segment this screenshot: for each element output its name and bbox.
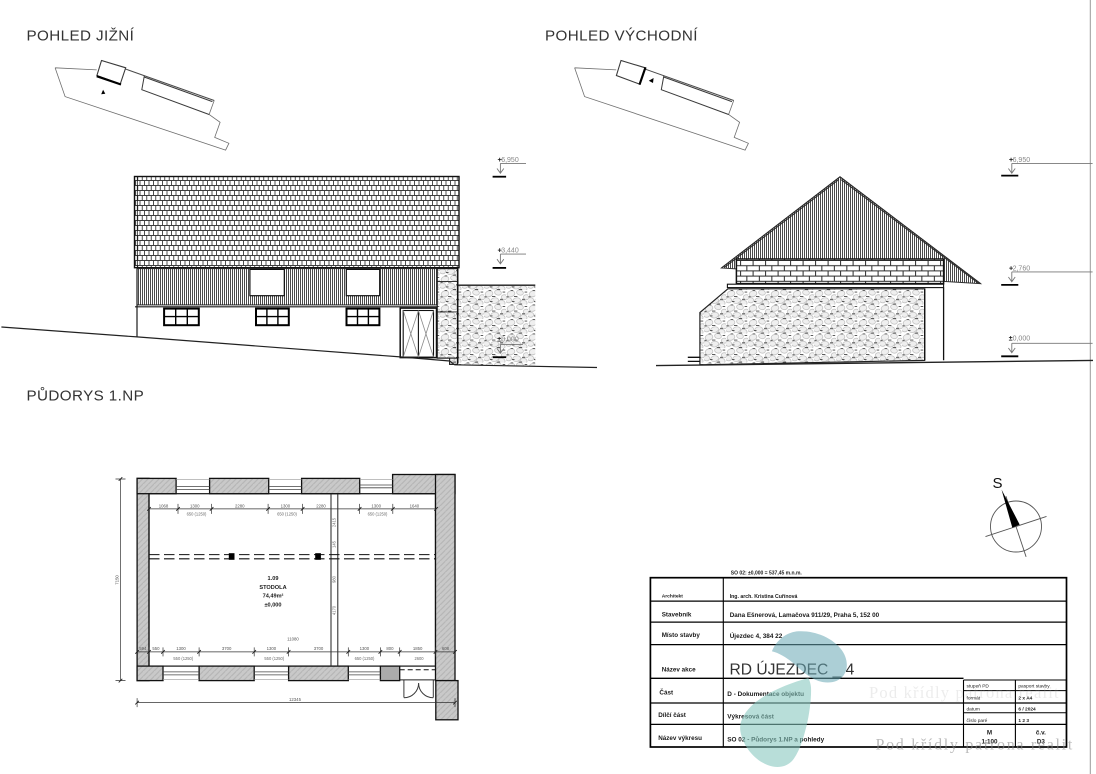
svg-text:74,49m²: 74,49m² <box>263 593 284 600</box>
svg-text:POHLED JIŽNÍ: POHLED JIŽNÍ <box>27 28 135 45</box>
svg-text:1300: 1300 <box>281 503 291 508</box>
svg-text:+: + <box>498 246 503 255</box>
svg-text:±: ± <box>497 337 501 344</box>
svg-text:550 (1250): 550 (1250) <box>173 656 193 661</box>
svg-text:Část: Část <box>659 688 674 697</box>
svg-text:2,760: 2,760 <box>1011 265 1030 272</box>
svg-text:±0,000: ±0,000 <box>264 602 281 608</box>
svg-text:650 (1250): 650 (1250) <box>355 656 375 661</box>
svg-text:7150: 7150 <box>115 575 120 585</box>
svg-text:12345: 12345 <box>289 697 302 702</box>
svg-text:1.09: 1.09 <box>268 576 279 582</box>
svg-text:Stavebník: Stavebník <box>662 611 692 618</box>
svg-text:M: M <box>987 730 992 737</box>
svg-text:594: 594 <box>139 646 147 651</box>
svg-text:11080: 11080 <box>287 637 299 642</box>
svg-text:1 2 3: 1 2 3 <box>1018 718 1029 724</box>
svg-text:2280: 2280 <box>235 503 245 508</box>
svg-text:Újezdec 4, 384 22: Újezdec 4, 384 22 <box>730 631 783 640</box>
svg-text:608: 608 <box>442 646 450 651</box>
svg-text:Pod křídly patrona realit: Pod křídly patrona realit <box>876 737 1074 754</box>
svg-text:2415: 2415 <box>332 517 337 527</box>
svg-text:+: + <box>1009 264 1014 273</box>
svg-text:650 (1250): 650 (1250) <box>277 511 297 516</box>
svg-text:Dílčí část: Dílčí část <box>658 712 687 719</box>
svg-text:datum: datum <box>967 706 980 712</box>
svg-text:1300: 1300 <box>360 646 370 651</box>
svg-text:Ing. arch. Kristina Cuřínová: Ing. arch. Kristina Cuřínová <box>730 594 798 600</box>
svg-text:1068: 1068 <box>159 503 169 508</box>
svg-text:S: S <box>993 475 1003 492</box>
svg-text:550: 550 <box>152 646 160 651</box>
svg-text:Pod křídly patrona realit: Pod křídly patrona realit <box>869 683 1060 702</box>
svg-text:2280: 2280 <box>316 503 326 508</box>
svg-text:+: + <box>1009 155 1014 164</box>
svg-text:Název výkresu: Název výkresu <box>658 735 702 742</box>
svg-text:980: 980 <box>332 575 337 583</box>
svg-text:Architekt: Architekt <box>662 594 684 600</box>
svg-text:1300: 1300 <box>267 646 277 651</box>
svg-text:6,950: 6,950 <box>1011 157 1030 164</box>
svg-text:1300: 1300 <box>190 503 200 508</box>
svg-text:650 (1250): 650 (1250) <box>187 511 207 516</box>
svg-text:1300: 1300 <box>176 646 186 651</box>
svg-text:0,000: 0,000 <box>500 337 519 344</box>
svg-text:STODOLA: STODOLA <box>259 585 286 591</box>
svg-text:číslo paré: číslo paré <box>967 718 988 724</box>
svg-text:6 / 2024: 6 / 2024 <box>1018 706 1036 712</box>
svg-text:Dana Ešnerová, Lamačova 911/29: Dana Ešnerová, Lamačova 911/29, Praha 5,… <box>730 612 880 619</box>
svg-text:POHLED VÝCHODNÍ: POHLED VÝCHODNÍ <box>545 28 698 45</box>
svg-text:1640: 1640 <box>410 503 420 508</box>
svg-text:Místo stavby: Místo stavby <box>662 632 701 639</box>
svg-text:Název akce: Název akce <box>662 667 696 674</box>
svg-text:550 (1250): 550 (1250) <box>264 656 284 661</box>
svg-text:1300: 1300 <box>371 503 381 508</box>
svg-text:650 (1250): 650 (1250) <box>368 511 388 516</box>
svg-text:3700: 3700 <box>222 646 232 651</box>
svg-text:3700: 3700 <box>314 646 324 651</box>
svg-text:800: 800 <box>386 646 394 651</box>
svg-text:0,000: 0,000 <box>1011 335 1030 342</box>
svg-text:+: + <box>498 155 503 164</box>
svg-text:SO 02: ±0,000 = 537,45 m.n.m.: SO 02: ±0,000 = 537,45 m.n.m. <box>731 571 803 577</box>
svg-text:1850: 1850 <box>413 646 423 651</box>
svg-text:PŮDORYS 1.NP: PŮDORYS 1.NP <box>27 387 145 405</box>
svg-text:3,440: 3,440 <box>500 248 519 255</box>
svg-text:145: 145 <box>332 540 337 548</box>
svg-text:6,950: 6,950 <box>500 157 519 164</box>
svg-text:2600: 2600 <box>414 656 424 661</box>
svg-text:4170: 4170 <box>332 605 337 615</box>
svg-text:±: ± <box>1009 336 1013 343</box>
svg-text:č.v.: č.v. <box>1036 730 1046 737</box>
